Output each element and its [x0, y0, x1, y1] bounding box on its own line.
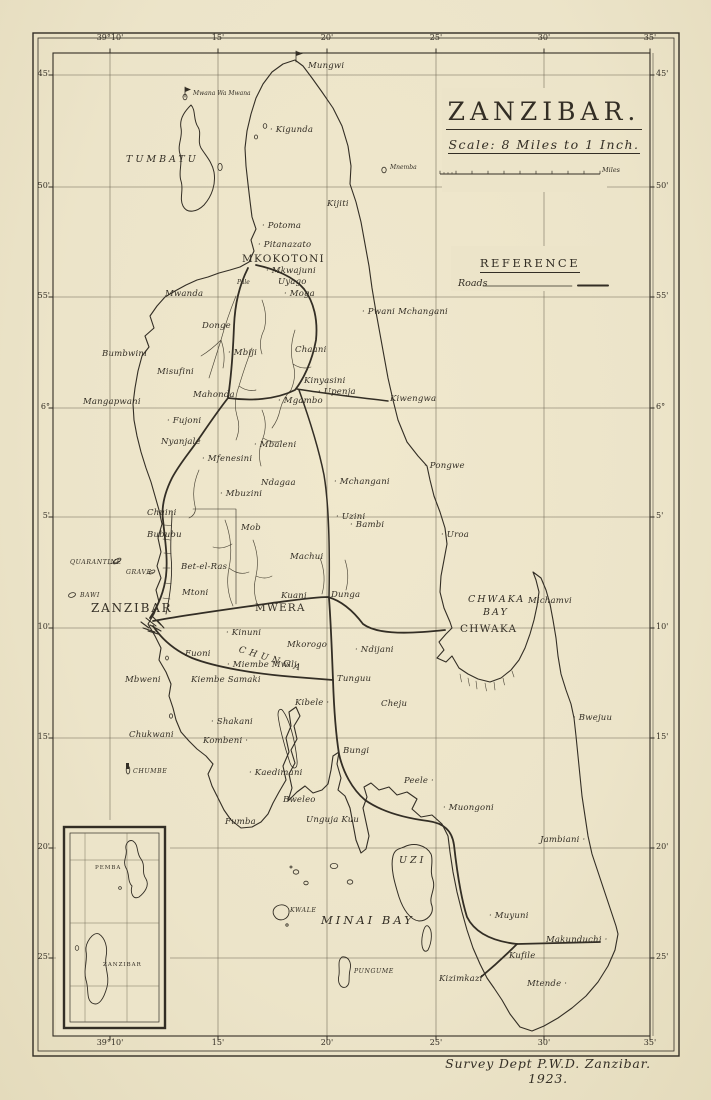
island-uzi-tail — [422, 926, 432, 952]
road-town-tunguu — [153, 626, 333, 680]
reference-title: REFERENCE — [480, 256, 580, 273]
road-middle — [299, 390, 329, 598]
reference-block: REFERENCE — [455, 252, 605, 271]
islet — [290, 866, 292, 868]
islet — [330, 863, 338, 868]
map-root: MungwiMwana Wa Mwana· KigundaTUMBATUMnem… — [0, 0, 711, 1100]
islet — [293, 870, 299, 874]
islet — [166, 656, 169, 660]
islet — [304, 881, 308, 885]
stream-mahonda — [235, 348, 256, 440]
road-kizimkazi — [481, 944, 517, 977]
road-north — [150, 268, 248, 618]
stream-mwera — [213, 520, 249, 606]
island-pungume — [338, 957, 350, 987]
islet — [218, 163, 222, 170]
stream-donge — [201, 296, 236, 378]
inset-outer-frame — [64, 827, 165, 1028]
attribution: Survey Dept P.W.D. Zanzibar. 1923. — [438, 1056, 658, 1086]
islet — [112, 557, 122, 565]
reference-roads-label: Roads — [458, 278, 488, 289]
island-tumbatu — [179, 105, 214, 211]
islet — [286, 924, 288, 926]
island-uzi — [392, 845, 434, 921]
stream-north — [260, 300, 265, 354]
islet — [169, 714, 172, 718]
road-tunguu-south — [329, 598, 517, 944]
stream-chaani — [272, 330, 311, 428]
map-title-row: ZANZIBAR. — [440, 97, 648, 126]
mwana-flag-pennant — [185, 87, 191, 92]
islet — [263, 124, 267, 129]
islet — [254, 135, 257, 139]
coast-main — [133, 60, 618, 1031]
map-canvas — [0, 0, 711, 1100]
title-block: ZANZIBAR. Scale: 8 Miles to 1 Inch. — [440, 97, 648, 153]
map-scale-text: Scale: 8 Miles to 1 Inch. — [448, 137, 639, 154]
islet — [347, 880, 353, 884]
island-kwale — [273, 905, 289, 920]
stream-bububu — [189, 470, 199, 518]
scale-miles-label: Miles — [602, 166, 620, 174]
islet — [382, 167, 386, 173]
estate-boundary — [193, 509, 236, 604]
map-scale-row: Scale: 8 Miles to 1 Inch. — [440, 134, 648, 153]
road-town-chwaka — [153, 597, 445, 633]
road-makunduchi — [517, 942, 600, 944]
islet — [68, 592, 76, 598]
road-kiwengwa — [297, 389, 388, 401]
islet — [148, 569, 155, 575]
stream-dunga — [320, 558, 348, 594]
reference-title-row: REFERENCE — [455, 252, 605, 271]
town-hatch — [141, 616, 164, 634]
stream-mwera-east — [253, 540, 272, 606]
map-title: ZANZIBAR. — [446, 97, 643, 130]
